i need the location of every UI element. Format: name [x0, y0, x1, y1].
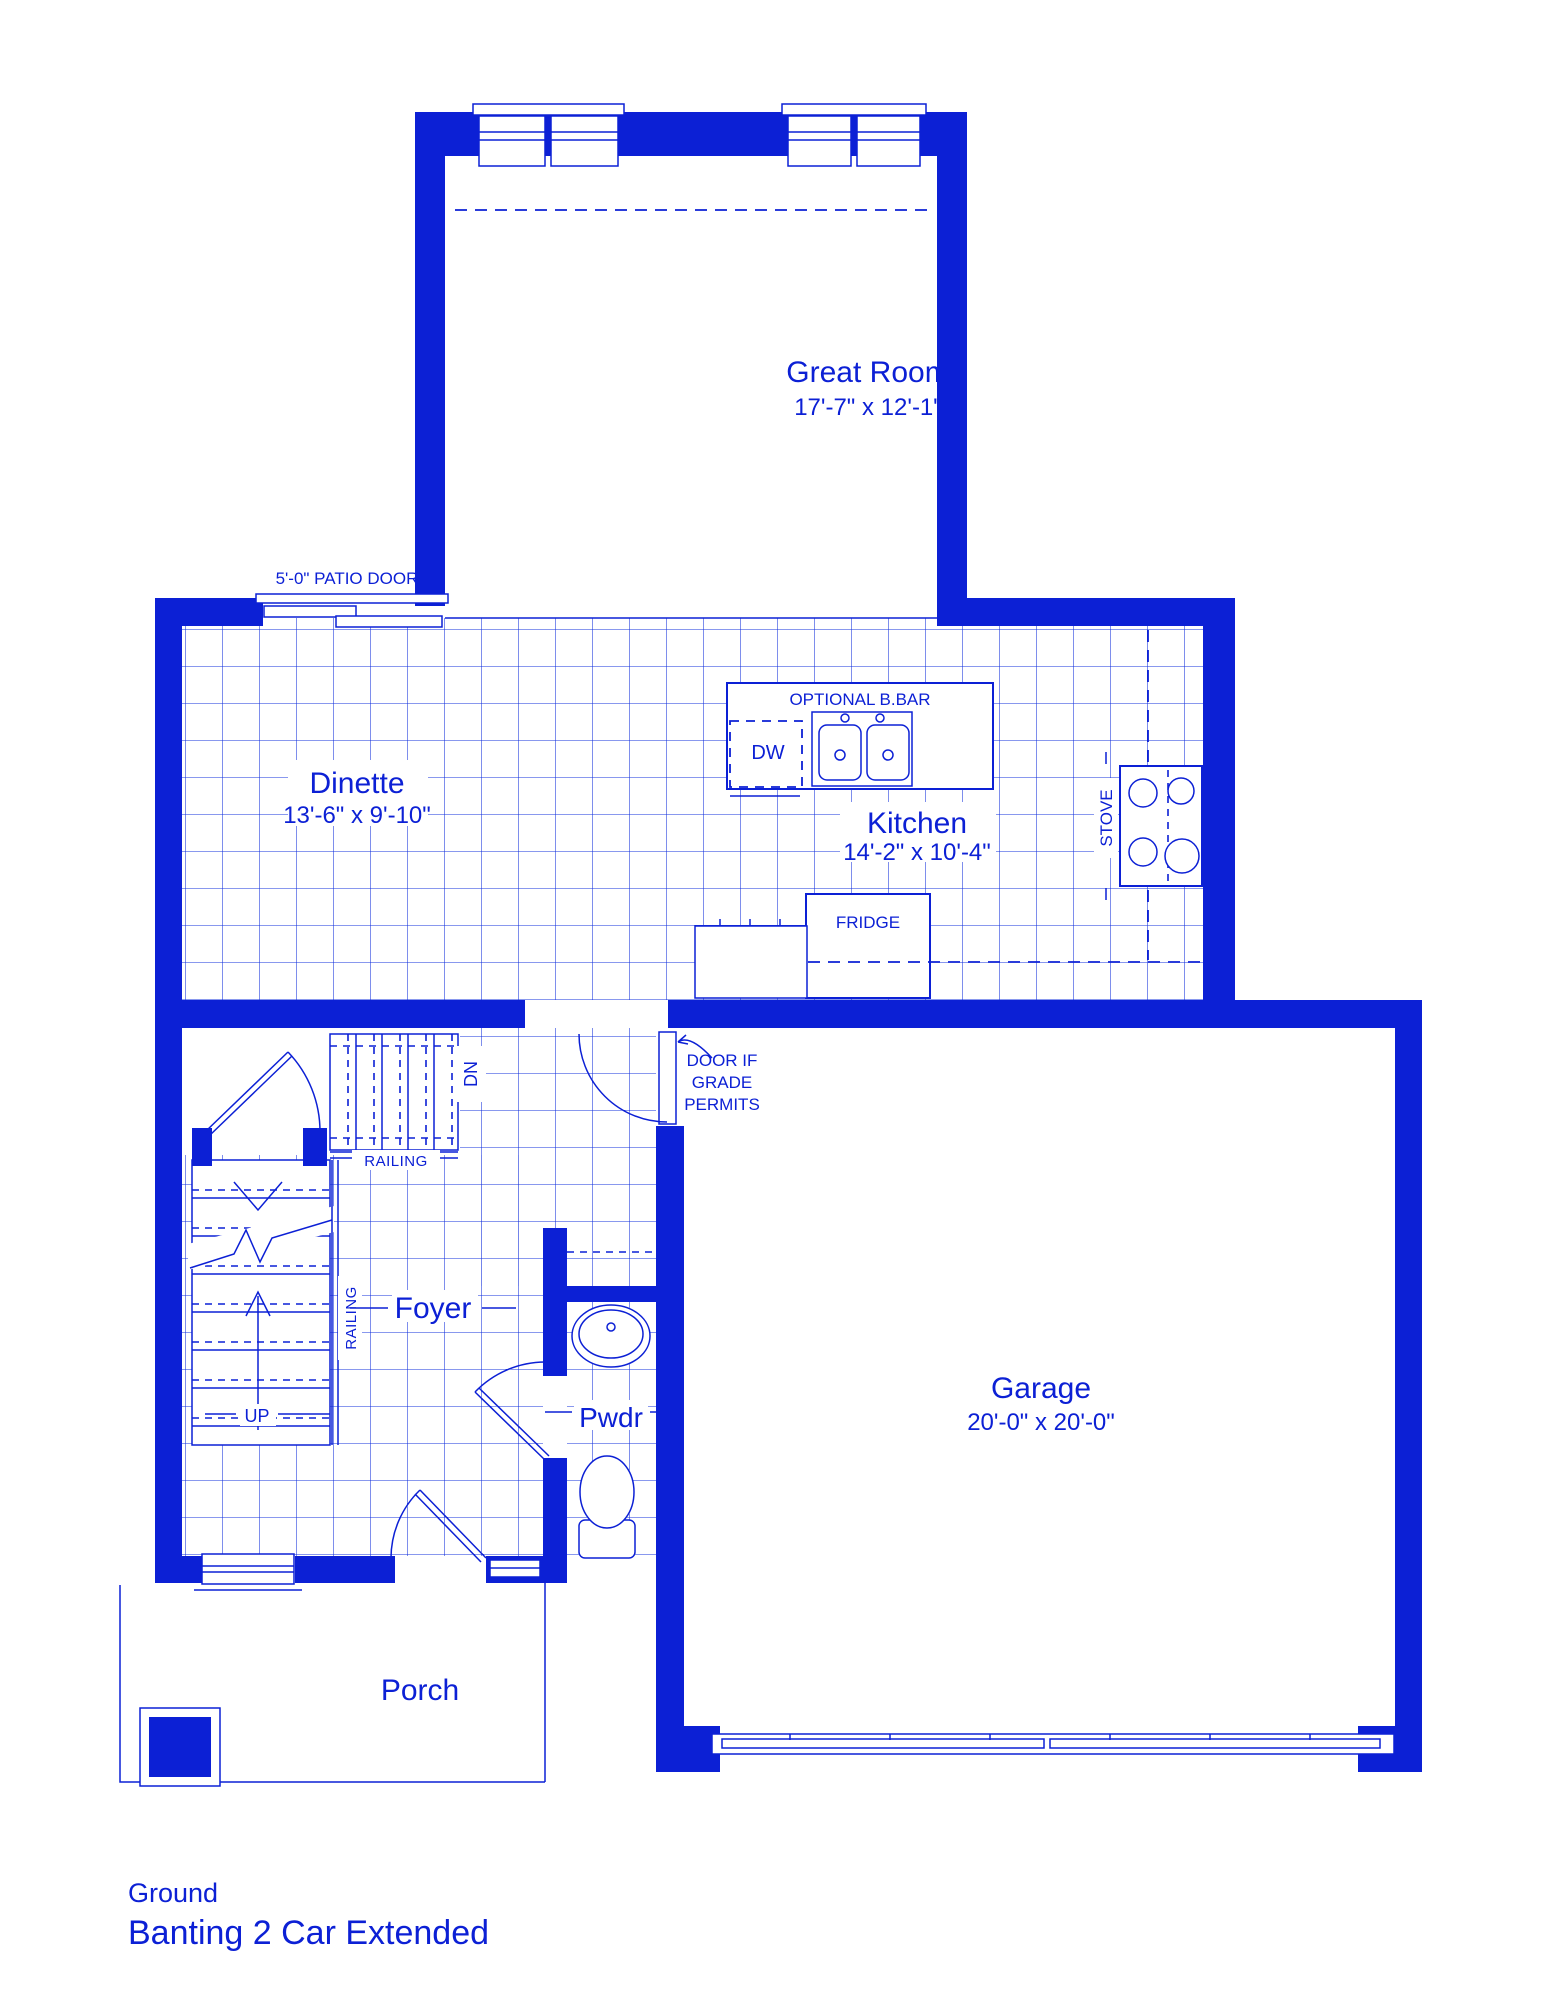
- dinette-dims: 13'-6" x 9'-10": [283, 802, 431, 829]
- burner-top-left: [1129, 779, 1157, 807]
- sink-basin-right: [867, 725, 909, 780]
- kitchen-dims: 14'-2" x 10'-4": [843, 839, 991, 866]
- great-room-window2-sill: [782, 104, 926, 115]
- railing-foyer-label: RAILING: [343, 1286, 360, 1350]
- great-room-window1-sash-left: [479, 116, 545, 166]
- pwdr-top-wall: [560, 1286, 660, 1302]
- fridge-box: [806, 894, 930, 998]
- burner-top-right: [1168, 778, 1194, 804]
- plan-title: Banting 2 Car Extended: [128, 1914, 489, 1952]
- dinette-label: Dinette: [309, 767, 404, 800]
- newel-post-right: [303, 1128, 327, 1166]
- great-room-dims: 17'-7" x 12'-1": [794, 394, 942, 421]
- newel-post-left: [192, 1128, 212, 1166]
- front-wall-left: [155, 1556, 205, 1583]
- kitchen-right-wall: [1203, 598, 1235, 1028]
- porch-post: [149, 1717, 211, 1777]
- stairs-down-run: [330, 1034, 458, 1150]
- garage-door-panel-right: [1050, 1739, 1380, 1748]
- patio-door-panel-right: [336, 616, 442, 627]
- optional-bbar-label: OPTIONAL B.BAR: [789, 690, 930, 709]
- garage-dims: 20'-0" x 20'-0": [967, 1409, 1115, 1436]
- great-room-left-wall: [415, 112, 445, 606]
- grade-door-leaf: [659, 1032, 676, 1124]
- garage-left-wall: [656, 1126, 684, 1744]
- pwdr-label: Pwdr: [579, 1402, 643, 1433]
- burner-bottom-left: [1129, 838, 1157, 866]
- mid-wall-left: [155, 1000, 525, 1028]
- great-room-window2-sash-right: [857, 116, 920, 166]
- floor-title: Ground: [128, 1878, 218, 1908]
- garage-top-wall: [668, 1000, 1422, 1028]
- grade-door-label-line2: GRADE: [692, 1073, 752, 1092]
- stairs-up-label: UP: [244, 1406, 269, 1426]
- sink-basin-left: [819, 725, 861, 780]
- kitchen-top-wall: [937, 598, 1235, 626]
- stairs-up-run: [192, 1160, 330, 1445]
- garage-right-wall: [1395, 1000, 1422, 1744]
- great-room-window1-sill: [473, 104, 624, 115]
- grade-door-label-line1: DOOR IF: [687, 1051, 758, 1070]
- stove-label: STOVE: [1097, 789, 1116, 846]
- pantry-cabinet: [695, 926, 807, 998]
- closet-door-leaf: [205, 1052, 292, 1136]
- closet-door-swing: [288, 1052, 320, 1132]
- front-wall-middle: [295, 1556, 395, 1583]
- garage-label: Garage: [991, 1372, 1091, 1405]
- grade-door-label-line3: PERMITS: [684, 1095, 760, 1114]
- great-room-window2-sash-left: [788, 116, 851, 166]
- patio-door-frame: [256, 594, 448, 603]
- fridge-label: FRIDGE: [836, 913, 900, 932]
- burner-bottom-right: [1165, 839, 1199, 873]
- garage-bottom-left-pier: [656, 1726, 720, 1772]
- kitchen-label: Kitchen: [867, 807, 967, 840]
- foyer-label: Foyer: [395, 1292, 472, 1325]
- toilet-bowl: [580, 1456, 634, 1528]
- front-window: [202, 1554, 294, 1584]
- garage-door-panel-left: [722, 1739, 1044, 1748]
- stairs-down-label: DN: [461, 1061, 481, 1087]
- dishwasher-label: DW: [751, 742, 784, 764]
- porch-label: Porch: [381, 1674, 459, 1707]
- floor-plan-drawing: Great Room 17'-7" x 12'-1" 5'-0" PATIO D…: [0, 0, 1546, 2000]
- patio-door-label: 5'-0" PATIO DOOR: [276, 569, 419, 588]
- great-room-label: Great Room: [786, 356, 949, 389]
- left-exterior-wall: [155, 598, 182, 1583]
- floor-plan-page: Great Room 17'-7" x 12'-1" 5'-0" PATIO D…: [0, 0, 1546, 2000]
- railing-stairs-label: RAILING: [364, 1153, 428, 1170]
- great-room-window1-sash-right: [551, 116, 618, 166]
